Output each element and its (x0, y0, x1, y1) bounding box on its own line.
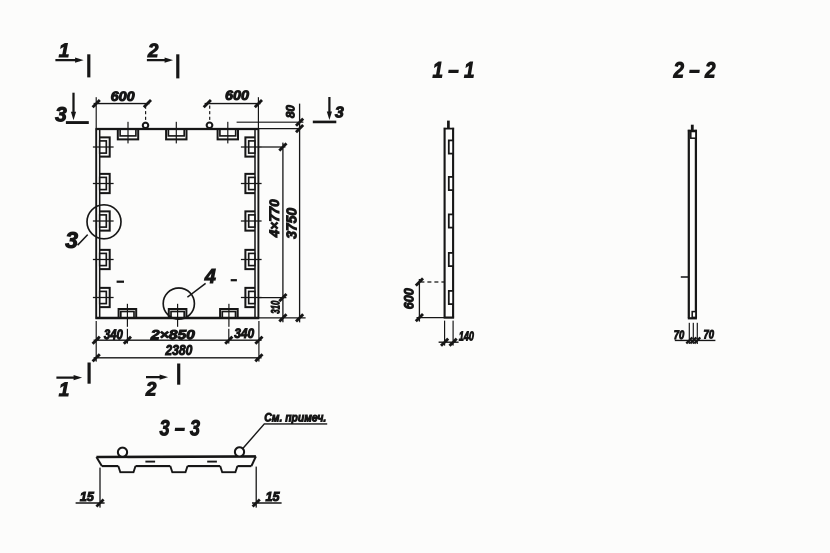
svg-text:См. примеч.: См. примеч. (264, 410, 326, 424)
svg-text:3750: 3750 (284, 208, 300, 239)
svg-text:4×770: 4×770 (266, 199, 282, 238)
svg-text:80: 80 (284, 105, 298, 118)
svg-text:3: 3 (65, 227, 78, 253)
svg-text:15: 15 (80, 490, 95, 504)
svg-text:1 – 1: 1 – 1 (433, 58, 475, 83)
svg-text:4: 4 (204, 266, 216, 288)
svg-text:1: 1 (59, 380, 70, 401)
svg-text:600: 600 (400, 288, 416, 309)
svg-text:15: 15 (266, 490, 281, 504)
svg-text:2380: 2380 (165, 342, 193, 359)
svg-text:3: 3 (55, 104, 67, 127)
svg-text:2 – 2: 2 – 2 (673, 58, 717, 83)
svg-text:70: 70 (704, 328, 715, 342)
svg-text:340: 340 (234, 325, 254, 341)
svg-text:140: 140 (459, 328, 475, 343)
svg-text:3: 3 (335, 104, 344, 121)
svg-text:2: 2 (145, 379, 157, 400)
svg-text:600: 600 (111, 89, 136, 104)
svg-text:600: 600 (225, 88, 250, 103)
svg-text:310: 310 (269, 300, 283, 313)
svg-text:340: 340 (104, 326, 123, 342)
svg-text:3 – 3: 3 – 3 (160, 415, 201, 440)
svg-text:70: 70 (674, 328, 685, 342)
svg-text:2×850: 2×850 (150, 327, 196, 342)
